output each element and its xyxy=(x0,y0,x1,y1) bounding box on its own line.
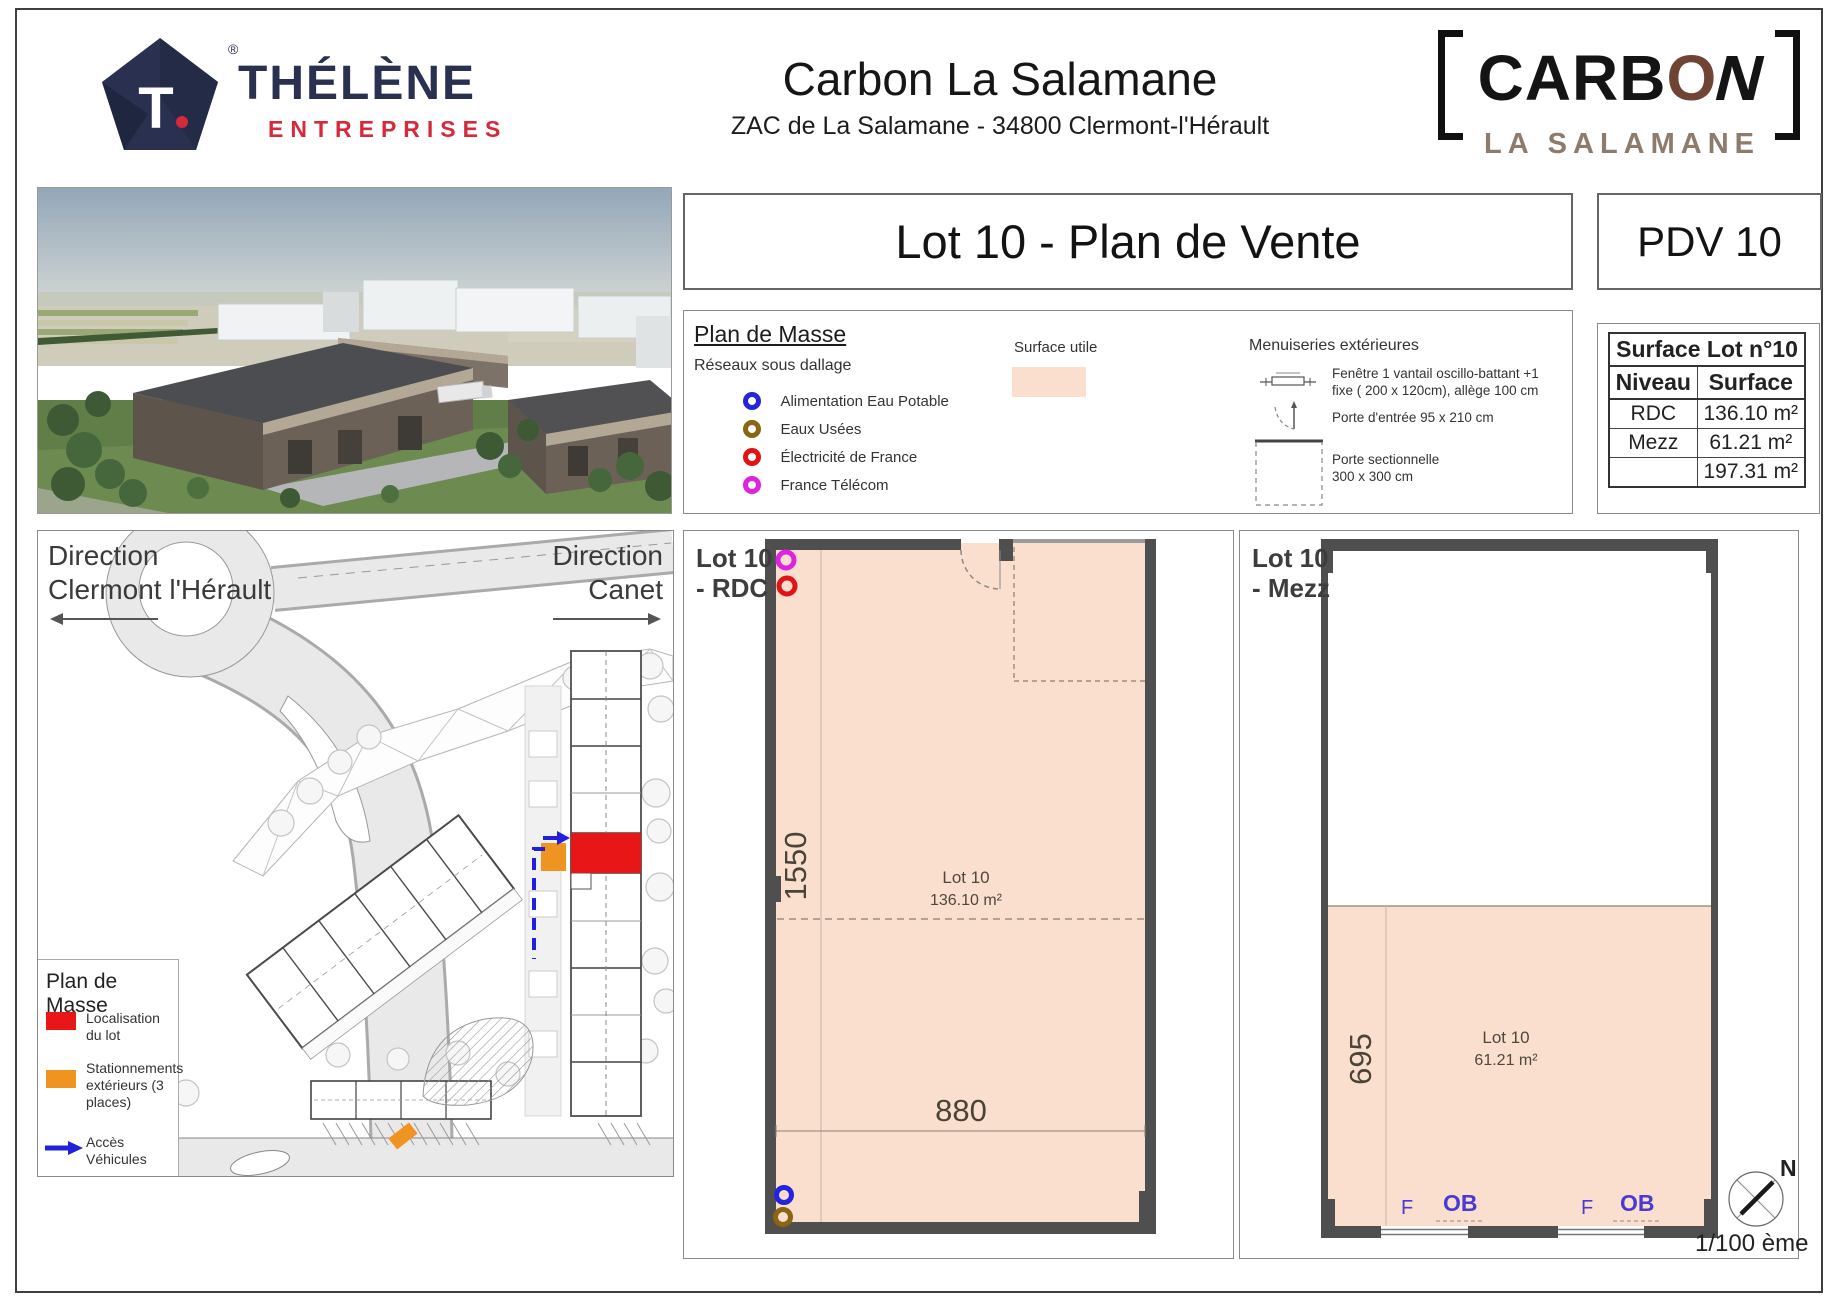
project-title: Carbon La Salamane xyxy=(560,52,1440,106)
carbon-bracket-left-icon xyxy=(1438,30,1463,140)
menuiserie-sectional-label: Porte sectionnelle 300 x 300 cm xyxy=(1332,451,1439,485)
menuiserie-entry-door-label: Porte d'entrée 95 x 210 cm xyxy=(1332,409,1494,426)
rdc-lot-name: Lot 10 xyxy=(942,868,989,887)
eau-potable-icon xyxy=(742,391,762,411)
compass-north-label: N xyxy=(1780,1155,1797,1181)
legend-networks-title: Réseaux sous dallage xyxy=(694,357,851,375)
table-row: RDC 136.10 m² xyxy=(1609,399,1805,429)
surface-table: Surface Lot n°10 Niveau Surface RDC 136.… xyxy=(1608,332,1806,488)
thelene-pentagon-icon: T ® xyxy=(100,36,250,156)
cell-niveau: Mezz xyxy=(1609,429,1697,458)
direction-left-line2: Clermont l'Hérault xyxy=(48,573,271,607)
access-arrow-icon xyxy=(557,831,570,845)
carbon-part1: CARB xyxy=(1478,42,1667,114)
lot-location-swatch xyxy=(46,1012,76,1030)
mezz-plan-label-line2: - Mezz xyxy=(1252,573,1330,603)
surface-table-title: Surface Lot n°10 xyxy=(1609,333,1805,366)
direction-right-arrow-icon xyxy=(551,611,661,627)
aerial-render-illustration xyxy=(38,188,671,513)
pdv-box: PDV 10 xyxy=(1597,193,1822,290)
window-label-ob2: OB xyxy=(1620,1190,1655,1216)
thelene-subtitle: ENTREPRISES xyxy=(268,116,507,143)
direction-left-line1: Direction xyxy=(48,539,271,573)
direction-right-line1: Direction xyxy=(553,539,663,573)
cell-niveau: RDC xyxy=(1609,399,1697,429)
thelene-wordmark: THÉLÈNE xyxy=(238,56,476,111)
carbon-logo: CARBON LA SALAMANE xyxy=(1438,26,1806,166)
mezz-plan-panel: 695 Lot 10 61.21 m² F OB F OB N Lot xyxy=(1239,530,1799,1259)
svg-text:®: ® xyxy=(228,41,239,57)
menuiserie-window-line1: Fenêtre 1 vantail oscillo-battant +1 xyxy=(1332,365,1539,382)
entry-door-symbol-icon xyxy=(1270,401,1302,435)
cell-surface: 61.21 m² xyxy=(1697,429,1805,458)
rdc-dim-vertical: 1550 xyxy=(778,832,813,901)
direction-right-line2: Canet xyxy=(553,573,663,607)
compass: N xyxy=(1729,1155,1797,1226)
table-row: Mezz 61.21 m² xyxy=(1609,429,1805,458)
cell-niveau xyxy=(1609,458,1697,488)
legend-item-label: France Télécom xyxy=(780,477,888,494)
mezz-floor-plan: 695 Lot 10 61.21 m² F OB F OB N xyxy=(1240,531,1798,1258)
legend-item-eaux-usees: Eaux Usées xyxy=(742,419,861,439)
rdc-plan-panel: 880 1550 Lot 10 136.10 m² Lot 10 - RDC xyxy=(683,530,1234,1259)
france-telecom-icon xyxy=(742,475,762,495)
parking-label: Stationnements extérieurs (3 places) xyxy=(86,1060,172,1111)
window-label-ob1: OB xyxy=(1443,1190,1478,1216)
mezz-lot-area: 61.21 m² xyxy=(1474,1052,1538,1069)
legend-box: Plan de Masse Réseaux sous dallage Alime… xyxy=(683,310,1573,514)
rdc-dim-horizontal: 880 xyxy=(935,1093,987,1128)
window-label-f1: F xyxy=(1401,1197,1413,1219)
scale-label: 1/100 ème xyxy=(1695,1230,1808,1258)
legend-item-label: Eaux Usées xyxy=(780,421,861,438)
legend-item-edf: Électricité de France xyxy=(742,447,917,467)
cell-surface: 136.10 m² xyxy=(1697,399,1805,429)
menuiserie-window-line2: fixe ( 200 x 120cm), allège 100 cm xyxy=(1332,382,1539,399)
parking-swatch xyxy=(46,1070,76,1088)
menuiserie-window-label: Fenêtre 1 vantail oscillo-battant +1 fix… xyxy=(1332,365,1539,399)
map-legend-box: Plan de Masse Localisation du lot Statio… xyxy=(38,959,179,1177)
direction-left-label: Direction Clermont l'Hérault xyxy=(48,539,271,607)
lot-location-label: Localisation du lot xyxy=(86,1010,170,1044)
menuiserie-sectional-line1: Porte sectionnelle xyxy=(1332,451,1439,468)
lot-location-highlight xyxy=(571,833,641,873)
legend-item-label: Électricité de France xyxy=(780,449,917,466)
rdc-plan-label-line2: - RDC xyxy=(696,573,773,603)
site-map-panel: Direction Clermont l'Hérault Direction C… xyxy=(37,530,674,1177)
rdc-floor-plan: 880 1550 Lot 10 136.10 m² xyxy=(684,531,1233,1258)
plan-title-box: Lot 10 - Plan de Vente xyxy=(683,193,1573,290)
surface-table-col-niveau: Niveau xyxy=(1609,366,1697,399)
menuiserie-sectional-line2: 300 x 300 cm xyxy=(1332,468,1439,485)
mezz-lot-name: Lot 10 xyxy=(1482,1028,1529,1047)
legend-item-france-telecom: France Télécom xyxy=(742,475,889,495)
table-row: 197.31 m² xyxy=(1609,458,1805,488)
thelene-logo: T ® xyxy=(100,36,250,156)
mezz-plan-label-line1: Lot 10 xyxy=(1252,543,1330,573)
window-label-f2: F xyxy=(1581,1197,1593,1219)
svg-text:T: T xyxy=(138,76,173,141)
rdc-lot-area: 136.10 m² xyxy=(930,892,1003,909)
sectional-door-symbol-icon xyxy=(1254,437,1324,507)
edf-icon xyxy=(742,447,762,467)
right-building xyxy=(571,651,641,1116)
project-address: ZAC de La Salamane - 34800 Clermont-l'Hé… xyxy=(560,112,1440,141)
surface-table-col-surface: Surface xyxy=(1697,366,1805,399)
rdc-plan-label-line1: Lot 10 xyxy=(696,543,773,573)
eaux-usees-icon xyxy=(742,419,762,439)
mezz-plan-label: Lot 10 - Mezz xyxy=(1252,543,1330,603)
plan-title: Lot 10 - Plan de Vente xyxy=(895,214,1360,269)
access-vehicles-label: Accès Véhicules xyxy=(86,1134,170,1168)
menuiseries-title: Menuiseries extérieures xyxy=(1249,337,1419,355)
access-vehicles-arrow-icon xyxy=(43,1140,83,1156)
window-symbol-icon xyxy=(1260,367,1316,393)
legend-item-label: Alimentation Eau Potable xyxy=(780,393,948,410)
pdv-code: PDV 10 xyxy=(1637,218,1782,266)
direction-right-label: Direction Canet xyxy=(553,539,663,607)
legend-title: Plan de Masse xyxy=(694,321,846,348)
mezz-dim-vertical: 695 xyxy=(1343,1033,1378,1085)
direction-left-arrow-icon xyxy=(50,611,160,627)
aerial-render-photo xyxy=(37,187,672,514)
rdc-surface-utile-area xyxy=(768,543,1153,1233)
carbon-wordmark: CARBON xyxy=(1462,30,1780,126)
surface-panel: Surface Lot n°10 Niveau Surface RDC 136.… xyxy=(1597,323,1820,514)
rdc-plan-label: Lot 10 - RDC xyxy=(696,543,773,603)
carbon-sub: LA SALAMANE xyxy=(1438,128,1806,161)
surface-utile-swatch xyxy=(1012,367,1086,397)
legend-item-eau-potable: Alimentation Eau Potable xyxy=(742,391,949,411)
cell-surface-total: 197.31 m² xyxy=(1697,458,1805,488)
surface-utile-label: Surface utile xyxy=(1014,339,1097,356)
plan-de-vente-page: T ® THÉLÈNE ENTREPRISES Carbon La Salama… xyxy=(0,0,1838,1300)
